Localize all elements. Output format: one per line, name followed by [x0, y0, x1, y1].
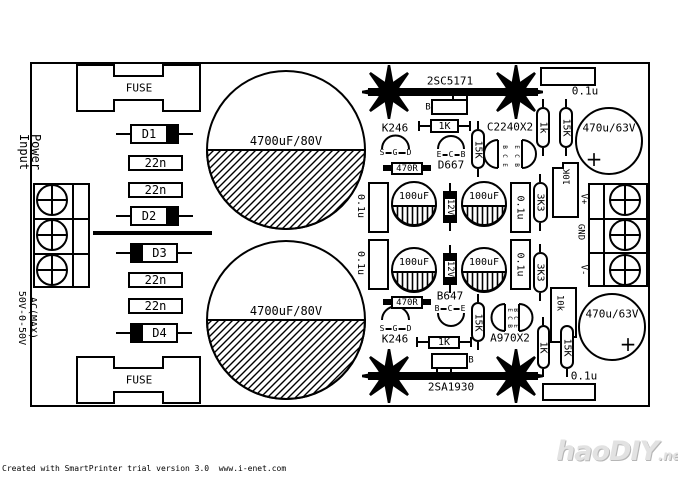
power-terminal-block	[33, 183, 90, 288]
diode-d3: D3	[130, 243, 178, 263]
power-input-label: PowerInput	[18, 134, 66, 170]
cap-01u-left-bottom	[368, 239, 389, 290]
dual-pin: E	[512, 324, 518, 328]
pcb-layout-print: D1 D2 D3 D4 22n 22n 22n 22n 1K 470R 470R…	[0, 0, 678, 480]
ac-rating-label: AC(MAX)50V-0-50V	[16, 291, 60, 345]
dual-pin: B	[512, 308, 518, 312]
trimmer-label-top: 10K	[564, 169, 573, 185]
base-pin-label-top: B	[425, 104, 430, 113]
zener-12v-bottom: 12V	[443, 253, 457, 285]
divider-1k-top: 1k	[536, 107, 550, 148]
driver-pin-b-bottom: B	[434, 305, 441, 313]
output-terminal-block	[588, 183, 648, 287]
jfet-pin-g-top: G	[392, 149, 399, 157]
out-cap-label-bottom: 470u/63V	[586, 309, 639, 320]
cap-01u-left-label-bottom: 0.1u	[355, 251, 365, 275]
resistor-470r-bottom: 470R	[391, 296, 423, 309]
out-cap-label-top: 470u/63V	[583, 123, 636, 134]
watermark: haoDIY.net	[556, 436, 678, 467]
footer-credit: Created with SmartPrinter trial version …	[2, 464, 286, 473]
cap-100uf-label-2: 100uF	[469, 192, 499, 202]
bulk-cap-label-top: 4700uF/80V	[250, 135, 322, 147]
resistor-15k-bottom: 15K	[471, 302, 485, 342]
diode-d1: D1	[130, 124, 179, 144]
cap-01u-corner-top	[540, 67, 596, 86]
cap-01u-corner-bottom	[542, 383, 596, 401]
dual-pin: C	[512, 316, 518, 320]
fuse-label-top: FUSE	[126, 83, 153, 94]
cap-100uf-label-4: 100uF	[469, 258, 499, 268]
cap-01u-right-top: 0.1u	[510, 182, 531, 233]
dual-pin: B	[513, 163, 519, 167]
dual-pin: E	[501, 163, 507, 167]
resistor-1k-top: 1K	[430, 119, 459, 133]
dual-pin: B	[501, 145, 507, 149]
base-pin-label-bottom: B	[468, 357, 473, 366]
zener-12v-top: 12V	[443, 191, 457, 223]
watermark-brand: haoDIY	[556, 436, 658, 467]
driver-pin-b-top: B	[460, 151, 467, 159]
dual-pin: C	[513, 154, 519, 158]
fuse-label-bottom: FUSE	[126, 375, 153, 386]
polarity-plus-bottom: +	[620, 334, 637, 354]
polarity-plus-top: +	[586, 149, 603, 169]
output-label-vplus: V+	[579, 194, 588, 205]
driver-pin-e-top: E	[436, 151, 443, 159]
film-cap-22n-1: 22n	[128, 155, 183, 171]
cap-01u-left-top	[368, 182, 389, 233]
output-label-vminus: V-	[579, 265, 588, 276]
trimmer-label-bottom: 10k	[555, 295, 564, 311]
driver-pin-c-top: C	[448, 151, 455, 159]
board-outline	[30, 62, 650, 407]
jfet-label-top: K246	[382, 123, 409, 134]
film-cap-22n-2: 22n	[128, 182, 183, 198]
driver-label-bottom: B647	[437, 291, 464, 302]
cap-100uf-label-3: 100uF	[399, 258, 429, 268]
divider-15k-bottom: 15K	[560, 325, 574, 369]
cap-01u-corner-label-bottom: 0.1u	[571, 371, 598, 382]
cap-01u-right-bottom: 0.1u	[510, 239, 531, 290]
diode-d2: D2	[130, 206, 179, 226]
jfet-pin-s-top: S	[379, 149, 386, 157]
dual-pin: C	[501, 154, 507, 158]
resistor-15k-top: 15K	[471, 129, 485, 169]
driver-pin-c-bottom: C	[447, 305, 454, 313]
jfet-pin-s-bottom: S	[379, 325, 386, 333]
dual-pair-label-top: C2240X2	[487, 122, 533, 133]
dual-pair-label-bottom: A970X2	[490, 333, 530, 344]
power-transistor-label-top: 2SC5171	[427, 76, 473, 87]
watermark-tld: .net	[658, 449, 678, 464]
resistor-470r-top: 470R	[391, 162, 423, 175]
resistor-1k-bottom: 1K	[428, 336, 460, 349]
divider-15k-top: 15K	[559, 107, 573, 148]
film-cap-22n-4: 22n	[128, 298, 183, 314]
dual-pin: E	[513, 145, 519, 149]
output-label-gnd: GND	[576, 224, 585, 240]
cap-100uf-label-1: 100uF	[399, 192, 429, 202]
resistor-3k3-bottom: 3K3	[533, 252, 548, 293]
driver-pin-e-bottom: E	[460, 305, 467, 313]
divider-1k-bottom: 1K	[537, 325, 550, 369]
jfet-pin-d-bottom: D	[406, 325, 413, 333]
resistor-3k3-top: 3K3	[533, 182, 548, 223]
driver-label-top: D667	[438, 160, 465, 171]
film-cap-22n-3: 22n	[128, 272, 183, 288]
cap-01u-left-label-top: 0.1u	[355, 194, 365, 218]
jfet-pin-g-bottom: G	[392, 325, 399, 333]
cap-01u-corner-label-top: 0.1u	[572, 86, 599, 97]
power-transistor-label-bottom: 2SA1930	[428, 382, 474, 393]
jfet-pin-d-top: D	[406, 149, 413, 157]
diode-d4: D4	[130, 323, 178, 343]
bulk-cap-label-bottom: 4700uF/80V	[250, 305, 322, 317]
jfet-label-bottom: K246	[382, 334, 409, 345]
